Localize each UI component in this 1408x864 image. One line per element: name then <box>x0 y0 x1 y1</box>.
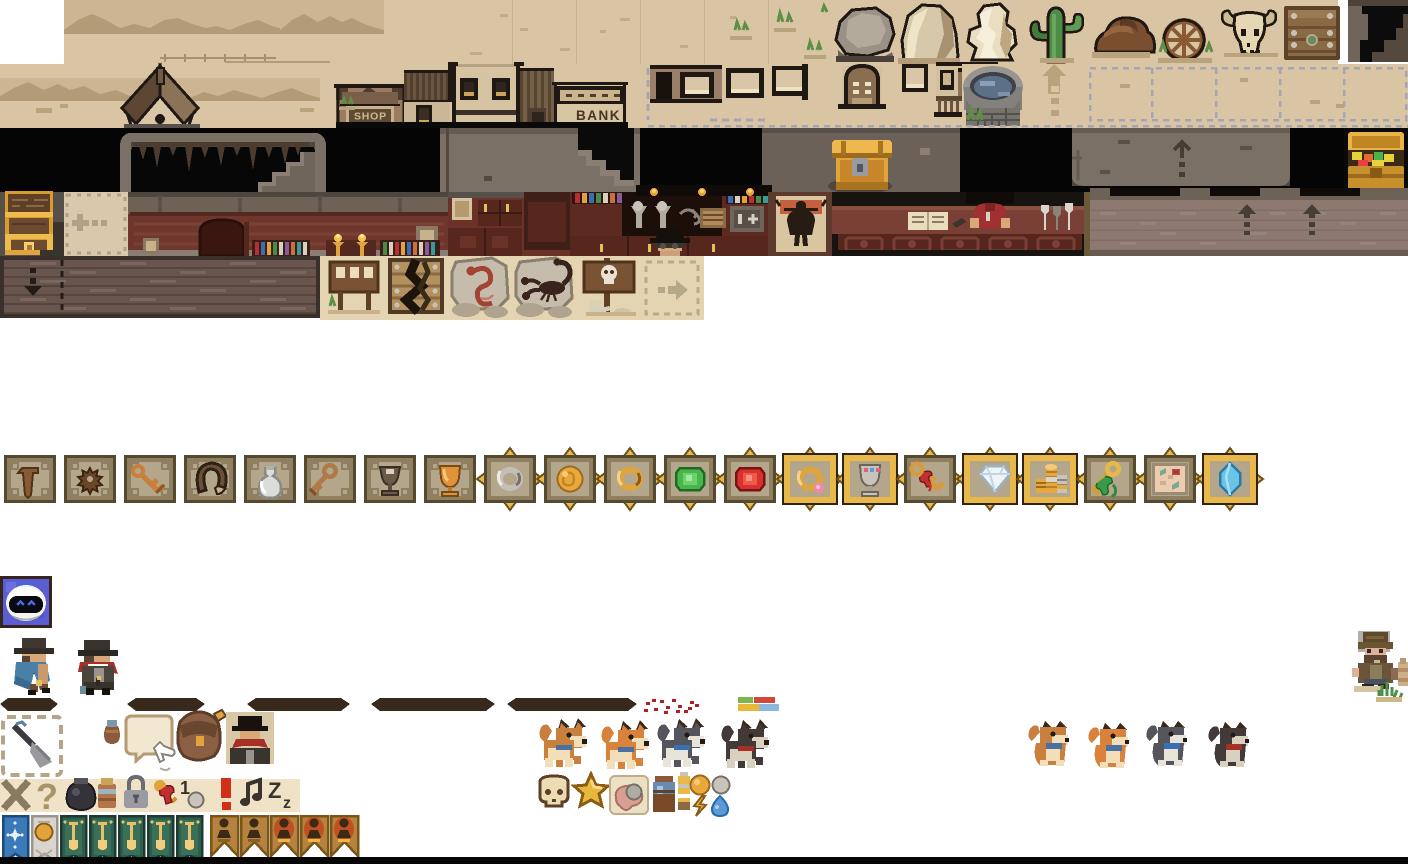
svg-text:1: 1 <box>180 778 190 798</box>
svg-text:z: z <box>283 795 291 812</box>
svg-text:BANK: BANK <box>576 108 621 123</box>
svg-text:Z: Z <box>268 778 281 803</box>
svg-text:SHOP: SHOP <box>354 111 387 123</box>
svg-text:?: ? <box>36 776 58 817</box>
